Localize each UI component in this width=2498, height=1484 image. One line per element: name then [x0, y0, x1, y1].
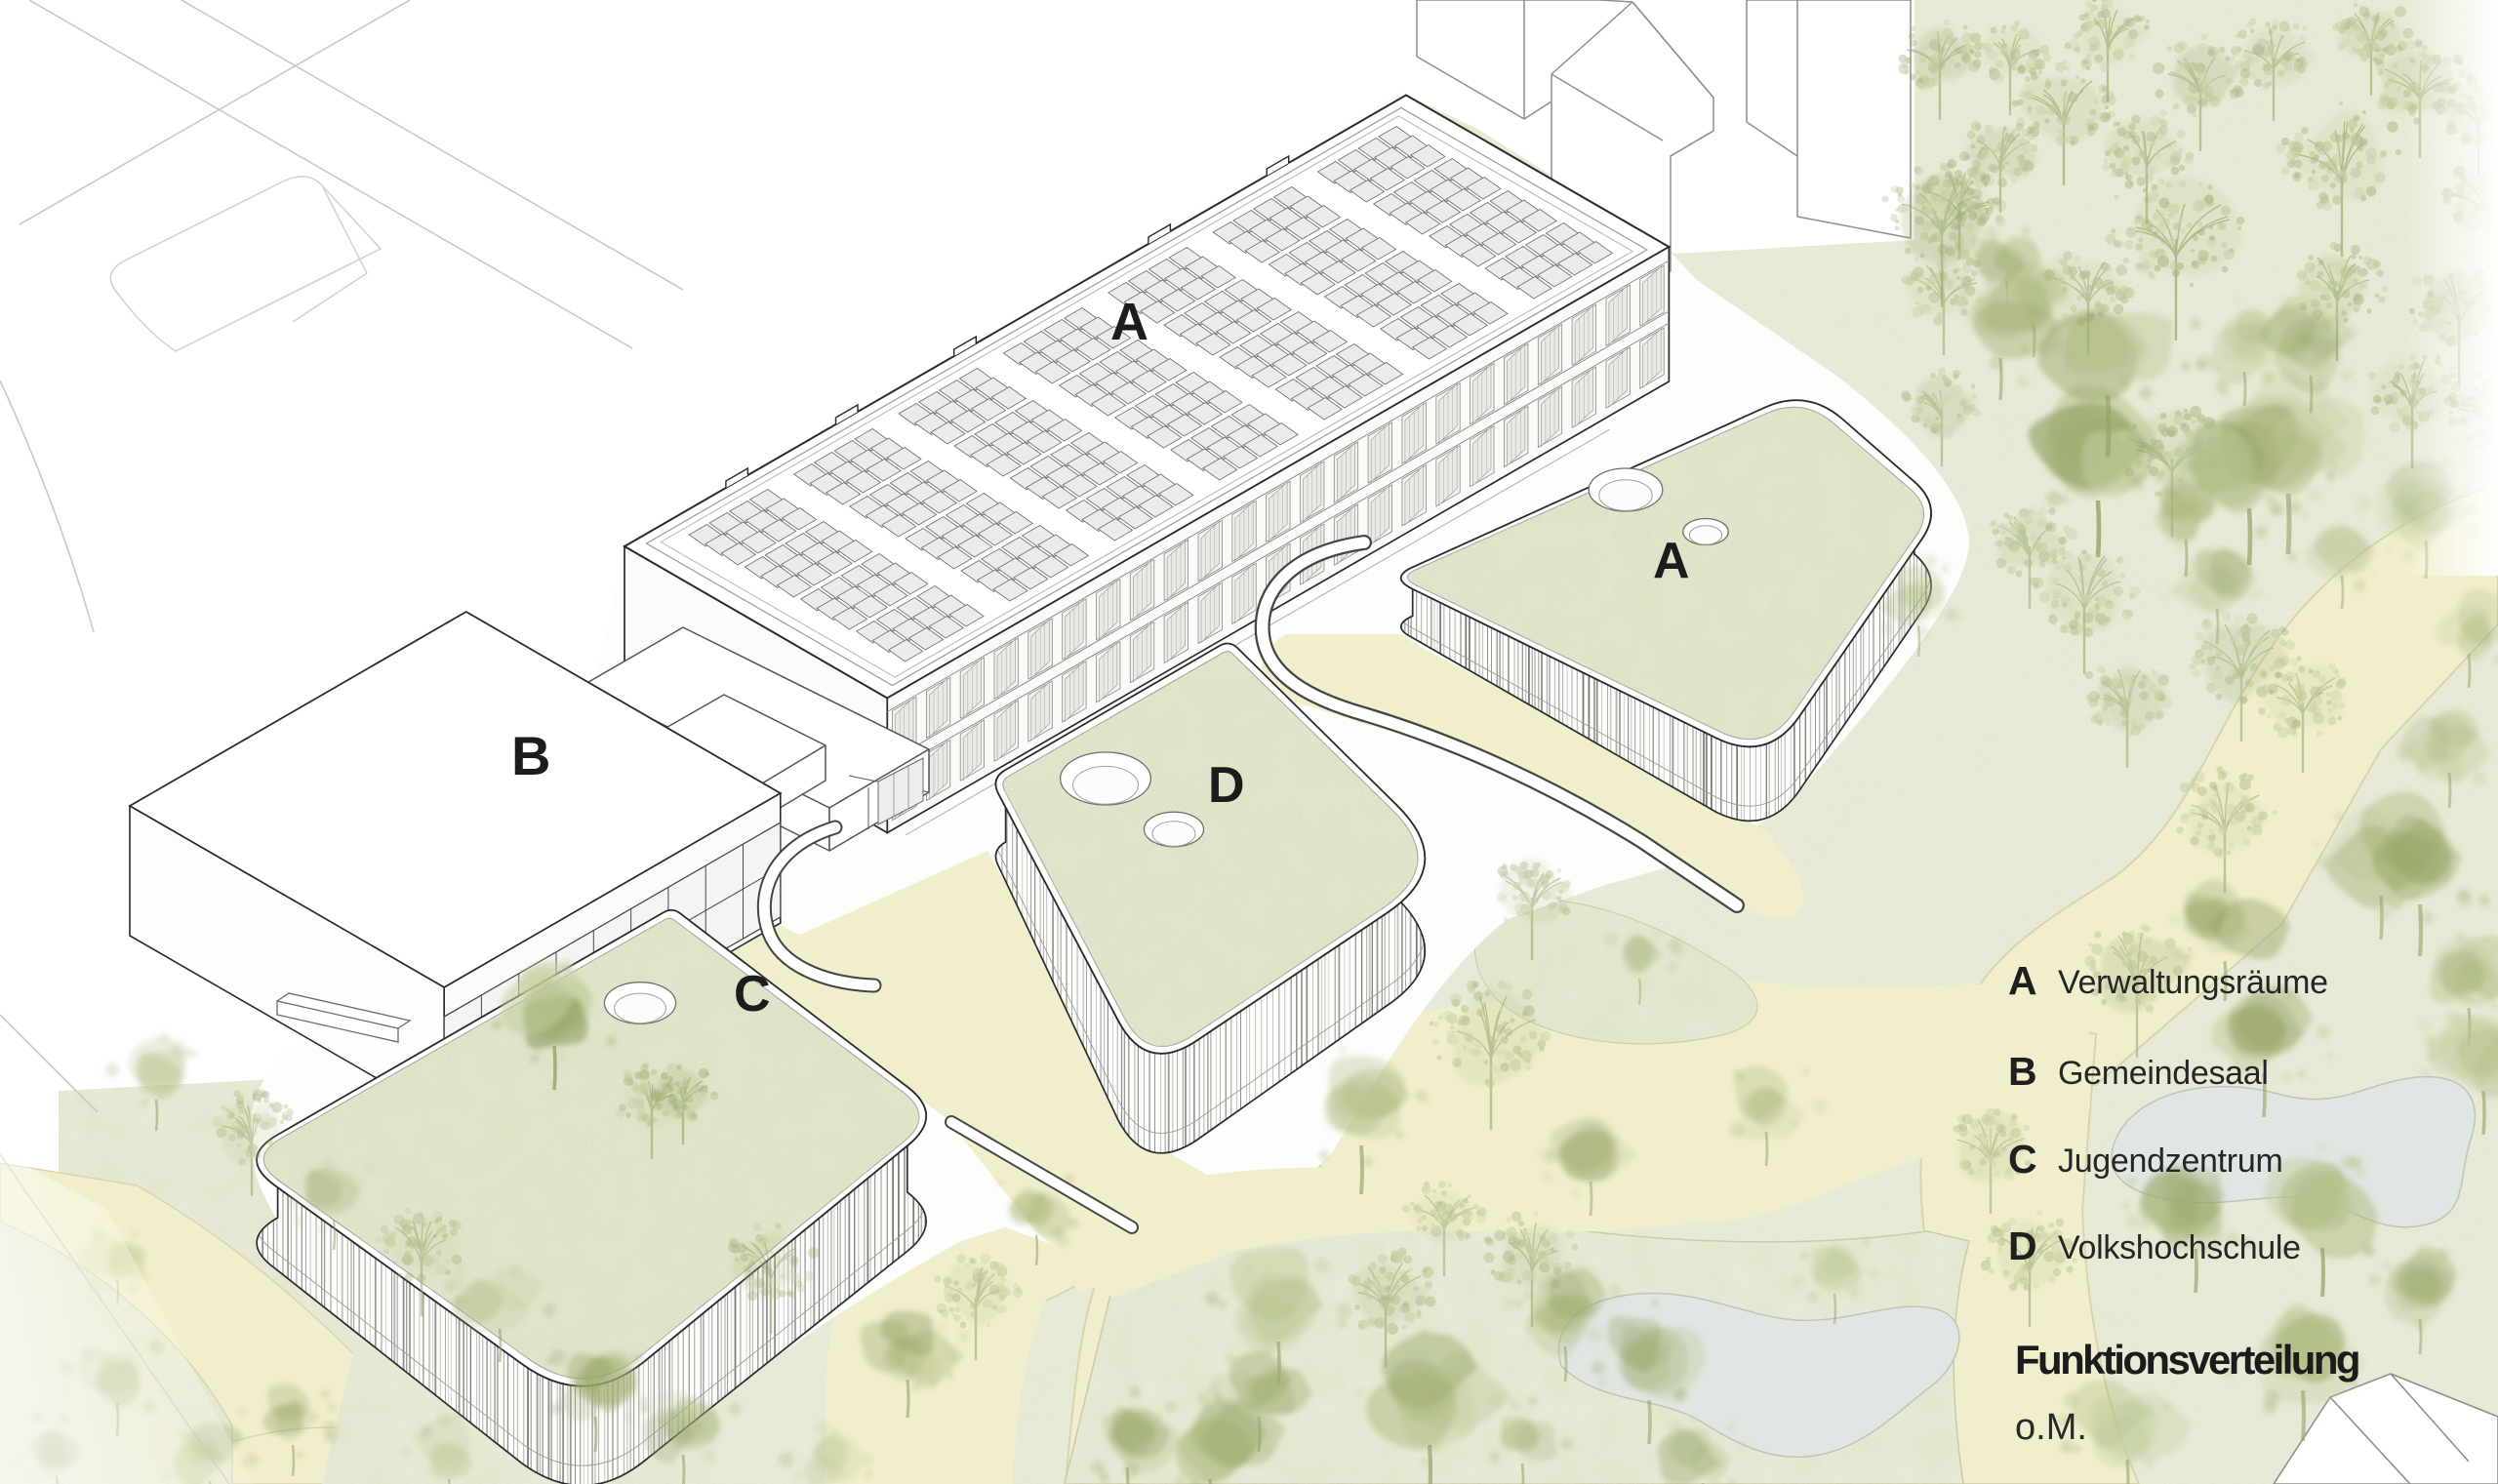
svg-text:Funktionsverteilung: Funktionsverteilung — [2015, 1337, 2358, 1383]
svg-text:Volkshochschule: Volkshochschule — [2058, 1229, 2301, 1266]
svg-text:C: C — [734, 966, 771, 1023]
svg-text:D: D — [1208, 757, 1245, 814]
svg-text:o.M.: o.M. — [2015, 1407, 2087, 1448]
svg-text:B: B — [511, 725, 550, 786]
svg-text:Gemeindesaal: Gemeindesaal — [2058, 1055, 2269, 1092]
svg-text:B: B — [2008, 1049, 2037, 1094]
svg-text:A: A — [2008, 958, 2037, 1003]
svg-text:Verwaltungsräume: Verwaltungsräume — [2058, 964, 2328, 1001]
svg-text:D: D — [2008, 1223, 2037, 1268]
svg-text:A: A — [1110, 293, 1148, 351]
svg-text:A: A — [1653, 533, 1690, 589]
svg-text:C: C — [2008, 1137, 2037, 1182]
svg-text:Jugendzentrum: Jugendzentrum — [2058, 1143, 2282, 1180]
